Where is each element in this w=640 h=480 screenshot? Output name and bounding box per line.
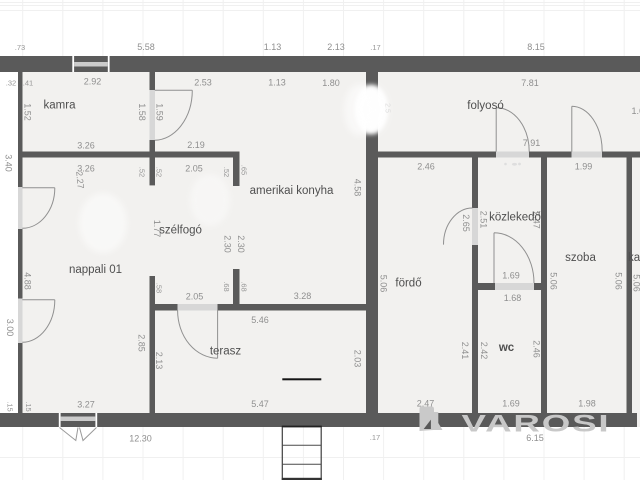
svg-text:4.88: 4.88 <box>23 272 33 290</box>
svg-text:1.68: 1.68 <box>504 293 522 303</box>
svg-text:terasz: terasz <box>210 346 242 358</box>
svg-text:2.03: 2.03 <box>353 350 363 368</box>
svg-text:1.80: 1.80 <box>322 78 340 88</box>
svg-text:1.13: 1.13 <box>264 42 282 52</box>
svg-text:.68: .68 <box>240 281 249 291</box>
svg-text:3.40: 3.40 <box>4 154 14 172</box>
svg-text:1.98: 1.98 <box>578 399 596 409</box>
svg-text:2.19: 2.19 <box>187 140 205 150</box>
svg-text:.52: .52 <box>155 167 164 177</box>
svg-text:2.42: 2.42 <box>479 342 489 360</box>
svg-text:2.13: 2.13 <box>154 352 164 370</box>
svg-text:1.58: 1.58 <box>137 103 147 121</box>
svg-text:3.26: 3.26 <box>77 141 95 151</box>
svg-text:1.69: 1.69 <box>502 271 520 281</box>
svg-text:7.91: 7.91 <box>523 138 541 148</box>
svg-text:.58: .58 <box>155 283 164 293</box>
svg-text:8.15: 8.15 <box>527 42 545 52</box>
svg-text:1.68: 1.68 <box>632 106 640 116</box>
svg-text:.52: .52 <box>222 167 231 177</box>
svg-text:szoba: szoba <box>565 252 596 264</box>
svg-text:.15: .15 <box>6 401 15 411</box>
svg-text:5.06: 5.06 <box>549 272 559 290</box>
svg-text:2.05: 2.05 <box>185 164 203 174</box>
svg-text:5.47: 5.47 <box>251 399 269 409</box>
svg-text:5.06: 5.06 <box>379 275 389 293</box>
svg-text:2.46: 2.46 <box>532 340 542 358</box>
svg-text:2.05: 2.05 <box>186 292 204 302</box>
svg-text:2.65: 2.65 <box>461 214 471 232</box>
svg-text:.73: .73 <box>15 43 25 52</box>
svg-text:12.30: 12.30 <box>129 434 152 444</box>
svg-text:2.27: 2.27 <box>74 171 85 189</box>
svg-text:2.53: 2.53 <box>194 78 212 88</box>
svg-text:2.30: 2.30 <box>223 235 233 253</box>
svg-text:2.41: 2.41 <box>460 342 470 360</box>
svg-text:2.30: 2.30 <box>236 235 246 253</box>
svg-text:1.69: 1.69 <box>502 399 520 409</box>
svg-text:közlekedő: közlekedő <box>489 212 541 224</box>
svg-text:2.5: 2.5 <box>384 103 391 113</box>
svg-text:2.47: 2.47 <box>417 399 435 409</box>
svg-text:1.99: 1.99 <box>575 162 593 172</box>
svg-text:5.46: 5.46 <box>251 315 269 325</box>
svg-text:5.06: 5.06 <box>632 274 640 292</box>
svg-text:3.27: 3.27 <box>77 400 95 410</box>
svg-text:5.58: 5.58 <box>137 42 155 52</box>
svg-text:.17: .17 <box>370 43 380 52</box>
svg-text:.32: .32 <box>6 79 16 88</box>
svg-text:nappali 01: nappali 01 <box>69 264 122 276</box>
svg-text:amerikai konyha: amerikai konyha <box>250 185 334 197</box>
svg-text:.15: .15 <box>24 401 33 411</box>
svg-text:.65: .65 <box>240 165 249 175</box>
svg-text:2.92: 2.92 <box>84 77 102 87</box>
svg-text:2.51: 2.51 <box>479 211 489 229</box>
svg-text:5.06: 5.06 <box>614 272 624 290</box>
svg-text:1.13: 1.13 <box>268 78 286 88</box>
svg-text:4.58: 4.58 <box>353 179 363 197</box>
svg-text:.68: .68 <box>222 281 231 291</box>
svg-text:szélfogó: szélfogó <box>159 225 202 237</box>
svg-text:folyosó: folyosó <box>467 100 503 112</box>
svg-text:6.15: 6.15 <box>526 433 544 443</box>
svg-text:1.52: 1.52 <box>23 103 33 121</box>
svg-text:kazá: kazá <box>628 252 640 264</box>
svg-text:2.13: 2.13 <box>327 42 345 52</box>
svg-text:.52: .52 <box>138 167 147 177</box>
svg-text:wc: wc <box>498 342 515 354</box>
svg-text:.41: .41 <box>23 79 33 88</box>
svg-text:7.81: 7.81 <box>521 78 539 88</box>
svg-text:3.28: 3.28 <box>294 291 312 301</box>
svg-text:kamra: kamra <box>44 100 77 112</box>
svg-text:.17: .17 <box>370 433 380 442</box>
svg-text:2.46: 2.46 <box>417 162 435 172</box>
svg-text:3.00: 3.00 <box>5 319 15 337</box>
svg-text:2.85: 2.85 <box>137 334 147 352</box>
svg-text:fördő: fördő <box>395 278 421 290</box>
svg-text:1.59: 1.59 <box>155 103 165 121</box>
